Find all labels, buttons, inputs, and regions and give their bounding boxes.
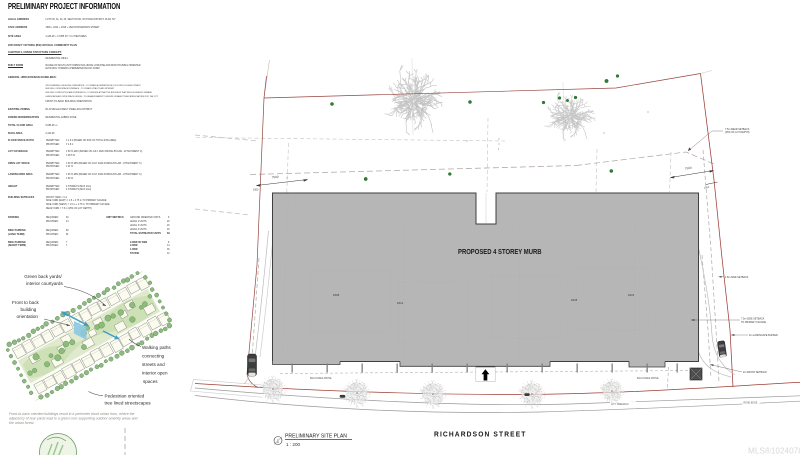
svg-text:1 : 200: 1 : 200 [286,442,300,447]
svg-text:MLS®1024078: MLS®1024078 [748,447,800,455]
svg-text:PRELIMINARY SITE PLAN: PRELIMINARY SITE PLAN [285,433,347,439]
svg-text:BALCONIES ABOVE: BALCONIES ABOVE [310,377,332,380]
svg-text:Walking paths: Walking paths [142,345,171,350]
svg-text:streets and: streets and [142,362,165,367]
svg-text:BALCONIES ABOVE: BALCONIES ABOVE [637,377,659,380]
svg-text:Front-to-back oriented buildin: Front-to-back oriented buildings result … [9,412,135,416]
svg-text:TO PRIMARY FACADE: TO PRIMARY FACADE [741,321,766,324]
svg-text:interior open: interior open [142,371,168,376]
svg-text:orientation: orientation [17,314,39,319]
svg-text:building: building [21,307,37,312]
svg-text:1822: 1822 [628,293,635,297]
svg-text:CITY SIDEWALK: CITY SIDEWALK [611,403,629,406]
svg-text:1814: 1814 [397,301,404,305]
svg-text:interior courtyards: interior courtyards [26,281,63,286]
svg-text:1500: 1500 [253,189,259,192]
svg-text:tree lined streetscapes: tree lined streetscapes [105,401,152,406]
svg-text:Front to back: Front to back [12,300,40,305]
svg-text:ROAD EDGE: ROAD EDGE [744,402,758,405]
svg-text:PROPOSED 4 STOREY MURB: PROPOSED 4 STOREY MURB [458,247,542,256]
svg-text:4m LANDSCAPE BUFFER: 4m LANDSCAPE BUFFER [749,334,778,337]
svg-text:1: 1 [277,438,280,443]
svg-text:spaces: spaces [143,379,158,384]
svg-text:1808: 1808 [333,293,340,297]
svg-text:4m FRONT SETBACK: 4m FRONT SETBACK [743,371,767,374]
svg-text:7500: 7500 [685,166,692,171]
svg-text:1818: 1818 [571,298,578,302]
svg-text:the urban forest.: the urban forest. [9,421,35,425]
svg-text:7500: 7500 [272,175,279,180]
svg-text:Pedestrian oriented: Pedestrian oriented [105,394,145,399]
svg-text:1500: 1500 [704,186,710,190]
svg-text:Green back yards/: Green back yards/ [24,274,62,279]
svg-text:adjacency of rear yards lead t: adjacency of rear yards lead to a green … [9,417,138,421]
svg-text:1.8m SIDE SETBACK: 1.8m SIDE SETBACK [725,276,749,279]
svg-text:RICHARDSON STREET: RICHARDSON STREET [434,432,527,439]
svg-text:connecting: connecting [142,354,165,359]
svg-text:(25% OF LOT DEPTH): (25% OF LOT DEPTH) [725,131,750,134]
